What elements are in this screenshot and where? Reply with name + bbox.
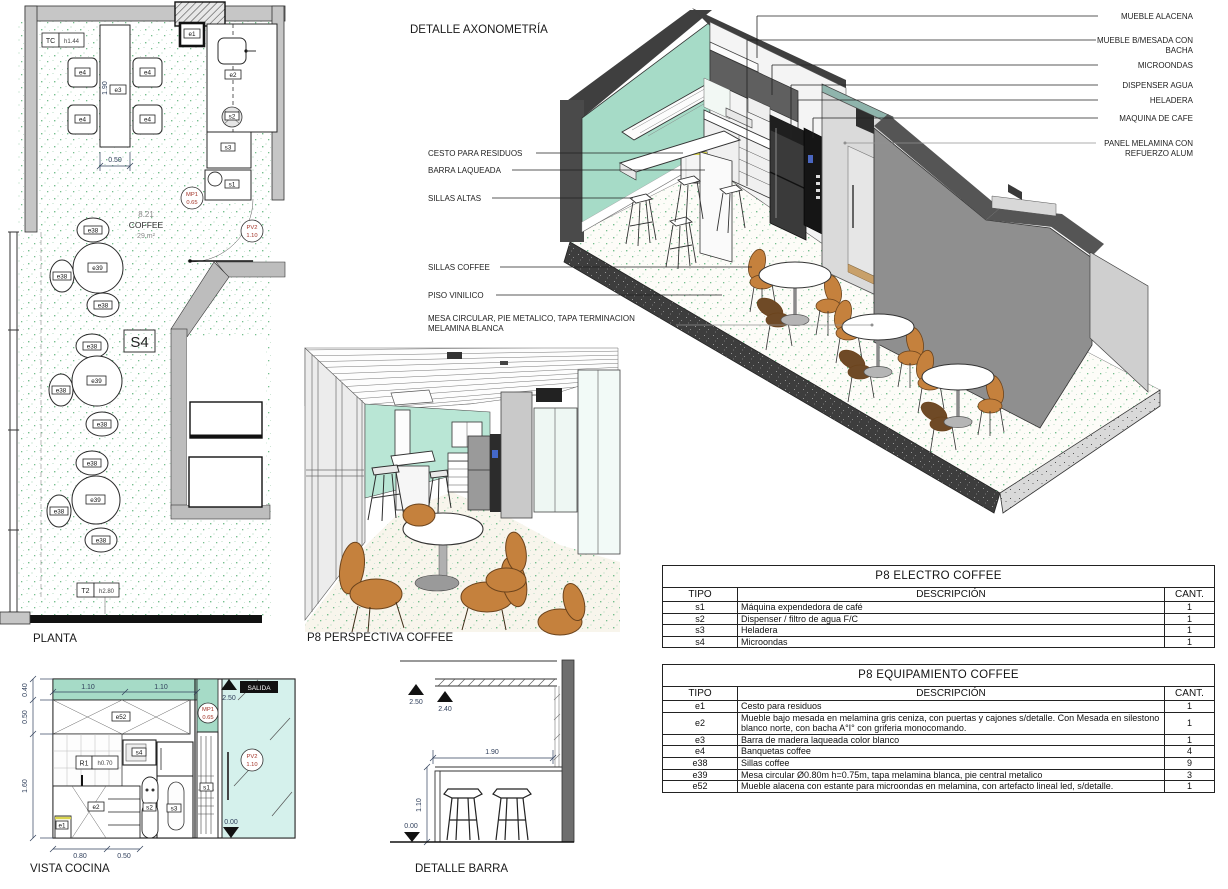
svg-text:0.50: 0.50 (22, 710, 29, 724)
vista-mint-band (53, 679, 197, 700)
plan-dim-width-text: 0.50 (108, 157, 122, 164)
svg-text:S4: S4 (130, 334, 148, 351)
svg-text:e39: e39 (90, 497, 101, 504)
svg-text:1.60: 1.60 (22, 779, 29, 793)
svg-text:R1: R1 (80, 761, 89, 768)
svg-text:e38: e38 (87, 461, 98, 468)
svg-text:e38: e38 (56, 388, 67, 395)
persp-fridge (468, 436, 490, 510)
axo-label-microondas: MICROONDAS (1138, 61, 1193, 70)
svg-text:8.21: 8.21 (138, 210, 154, 219)
vista-r1-tag: R1 h0.70 (76, 756, 118, 769)
svg-text:1.90: 1.90 (485, 749, 499, 756)
axo-label-mesa-2: MELAMINA BLANCA (428, 324, 504, 333)
persp-panel (501, 392, 532, 518)
svg-text:2.50: 2.50 (409, 699, 423, 706)
svg-text:s3: s3 (225, 145, 232, 152)
svg-text:h2.80: h2.80 (99, 589, 115, 595)
svg-text:2.40: 2.40 (438, 706, 452, 713)
persp-caption: P8 PERSPECTIVA COFFEE (307, 632, 453, 644)
table1-header-cant: CANT. (1164, 588, 1214, 602)
table-row: e2Mueble bajo mesada en melamina gris ce… (663, 712, 1215, 734)
table1-header-desc: DESCRIPCIÓN (738, 588, 1165, 602)
svg-text:29 m²: 29 m² (137, 233, 156, 240)
drawing-sheet: 1.90 0.50 e1 e2 s2 s3 s1 e3 e4 e4 e4 e4 (0, 0, 1228, 889)
table-row: e39Mesa circular Ø0.80m h=0.75m, tapa me… (663, 769, 1215, 781)
plan-tc-tag: TC h1.44 (42, 33, 84, 47)
table-row: e3Barra de madera laqueada color blanco1 (663, 734, 1215, 746)
svg-text:s4: s4 (136, 750, 143, 757)
svg-text:0.80: 0.80 (73, 853, 87, 860)
svg-text:MP1: MP1 (186, 192, 198, 198)
svg-text:MP1: MP1 (202, 707, 214, 713)
svg-text:1.10: 1.10 (246, 762, 257, 768)
persp-salida-sign (536, 388, 562, 402)
svg-text:0.65: 0.65 (186, 200, 197, 206)
axo-label-panel-2: REFUERZO ALUM (1125, 149, 1193, 158)
table-row: s1Máquina expendedora de café1 (663, 602, 1215, 614)
svg-text:s1: s1 (203, 785, 210, 792)
vista-mp1-tag: MP1 0.65 (198, 703, 218, 723)
svg-text:h0.70: h0.70 (97, 761, 113, 767)
svg-text:0.40: 0.40 (22, 683, 29, 697)
table2-title: P8 EQUIPAMIENTO COFFEE (663, 665, 1215, 687)
svg-text:PV2: PV2 (247, 754, 258, 760)
axo-label-bmesada-2: BACHA (1165, 46, 1193, 55)
plan-mp1-tag: MP1 0.65 (181, 187, 203, 209)
svg-text:e38: e38 (96, 538, 107, 545)
plan-bottom-wall (30, 615, 262, 623)
table-row: s2Dispenser / filtro de agua F/C1 (663, 613, 1215, 625)
svg-text:e1: e1 (58, 823, 66, 830)
svg-text:COFFEE: COFFEE (129, 220, 164, 230)
perspective-view: P8 PERSPECTIVA COFFEE (300, 347, 625, 644)
svg-text:PV2: PV2 (247, 225, 258, 231)
persp-coffee-machine (490, 434, 501, 512)
axo-label-alacena: MUEBLE ALACENA (1121, 12, 1194, 21)
electro-coffee-table: P8 ELECTRO COFFEE TIPO DESCRIPCIÓN CANT.… (662, 565, 1215, 648)
vista-door-pv2: PV2 1.10 (222, 679, 295, 838)
svg-text:e4: e4 (79, 70, 87, 77)
axo-label-bmesada-1: MUEBLE B/MESADA CON (1097, 36, 1193, 45)
barra-levels: 2.50 2.40 0.00 (404, 684, 453, 842)
svg-text:s2: s2 (146, 805, 153, 812)
svg-text:0.00: 0.00 (404, 823, 418, 830)
svg-text:e4: e4 (79, 117, 87, 124)
plan-left-wall (25, 6, 37, 232)
svg-text:e38: e38 (57, 274, 68, 281)
plan-window-wall (8, 232, 19, 612)
axo-label-panel-1: PANEL MELAMINA CON (1104, 139, 1193, 148)
floor-plan: 1.90 0.50 e1 e2 s2 s3 s1 e3 e4 e4 e4 e4 (0, 2, 285, 645)
svg-text:TC: TC (46, 38, 55, 45)
svg-text:e38: e38 (98, 303, 109, 310)
barra-dim-190: 1.90 (430, 749, 556, 764)
plan-top-wall (25, 6, 285, 21)
svg-text:e4: e4 (144, 117, 152, 124)
svg-text:1.10: 1.10 (416, 798, 423, 812)
plan-caption: PLANTA (33, 633, 77, 645)
table2-header-cant: CANT. (1165, 687, 1215, 701)
table2-header-tipo: TIPO (663, 687, 738, 701)
vista-caption: VISTA COCINA (30, 863, 110, 875)
axo-coffee-machine (804, 128, 824, 235)
plan-pv2-tag: PV2 1.10 (241, 220, 263, 242)
bar-detail: 2.50 2.40 0.00 1.90 1.10 DETALLE BARRA (390, 660, 574, 875)
vista-dims-bottom: 0.80 0.50 (50, 846, 143, 860)
svg-text:e38: e38 (97, 422, 108, 429)
svg-text:1.10: 1.10 (81, 684, 95, 691)
table-row: e52Mueble alacena con estante para micro… (663, 781, 1215, 793)
svg-text:e2: e2 (92, 804, 100, 811)
persp-door-1 (534, 408, 577, 512)
persp-door-2 (578, 370, 620, 554)
barra-stools (444, 789, 531, 840)
svg-text:h1.44: h1.44 (64, 39, 80, 45)
table-row: s3Heladera1 (663, 625, 1215, 637)
table-row: e1Cesto para residuos1 (663, 701, 1215, 713)
svg-text:e3: e3 (114, 87, 122, 94)
axo-title: DETALLE AXONOMETRÍA (410, 23, 548, 36)
svg-text:s1: s1 (229, 182, 236, 189)
barra-counter (435, 767, 562, 842)
table-row: e38Sillas coffee9 (663, 758, 1215, 770)
barra-slab (435, 679, 557, 686)
vista-dispenser-s2: s2 (142, 777, 158, 838)
vista-fridge-s3: s3 (157, 742, 193, 838)
axo-label-mesa-1: MESA CIRCULAR, PIE METALICO, TAPA TERMIN… (428, 314, 635, 323)
table1-title: P8 ELECTRO COFFEE (663, 566, 1215, 588)
vista-dims-left: 0.40 0.50 1.60 (22, 676, 53, 841)
axo-label-maquina: MAQUINA DE CAFE (1119, 114, 1193, 123)
svg-text:1.10: 1.10 (154, 684, 168, 691)
svg-text:s2: s2 (229, 114, 236, 121)
svg-text:0.50: 0.50 (117, 853, 131, 860)
svg-text:SALIDA: SALIDA (247, 685, 271, 692)
axo-label-sillas-altas: SILLAS ALTAS (428, 194, 481, 203)
svg-text:e2: e2 (229, 72, 237, 79)
table-row: e4Banquetas coffee4 (663, 746, 1215, 758)
axo-label-dispenser: DISPENSER AGUA (1122, 81, 1193, 90)
svg-text:e38: e38 (88, 228, 99, 235)
svg-text:e38: e38 (54, 509, 65, 516)
table-row: s4Microondas1 (663, 636, 1215, 648)
axo-corner-post (560, 100, 584, 242)
svg-text:2.50: 2.50 (222, 695, 236, 702)
vista-coffee-tower-s1: s1 (197, 732, 218, 838)
vista-salida-sign: SALIDA (240, 681, 278, 693)
svg-text:0.65: 0.65 (202, 715, 213, 721)
svg-text:e39: e39 (91, 378, 102, 385)
barra-caption: DETALLE BARRA (415, 863, 508, 875)
svg-text:s3: s3 (171, 806, 178, 813)
svg-text:T2: T2 (81, 588, 89, 595)
table2-header-desc: DESCRIPCIÓN (738, 687, 1165, 701)
axo-label-cesto: CESTO PARA RESIDUOS (428, 149, 522, 158)
svg-text:1.10: 1.10 (246, 233, 257, 239)
vista-e52-tag: e52 (116, 714, 127, 721)
table1-header-tipo: TIPO (663, 588, 738, 602)
svg-text:e39: e39 (92, 265, 103, 272)
vista-microwave-s4: s4 (123, 740, 156, 765)
plan-dim-bar-length: 1.90 (102, 81, 109, 95)
axo-label-piso: PISO VINILICO (428, 291, 484, 300)
svg-text:0.00: 0.00 (224, 819, 238, 826)
axo-label-sillas-coffee: SILLAS COFFEE (428, 263, 490, 272)
equipamiento-coffee-table: P8 EQUIPAMIENTO COFFEE TIPO DESCRIPCIÓN … (662, 664, 1215, 793)
kitchen-elevation: R1 h0.70 s4 s3 e2 e1 s2 s1 (22, 676, 295, 875)
svg-text:e1: e1 (188, 31, 196, 38)
svg-text:e38: e38 (87, 344, 98, 351)
barra-wall (562, 660, 574, 842)
axo-label-heladera: HELADERA (1150, 96, 1194, 105)
svg-text:e4: e4 (144, 70, 152, 77)
axo-label-barra: BARRA LAQUEADA (428, 166, 502, 175)
vista-cesto-e1: e1 (55, 816, 71, 838)
